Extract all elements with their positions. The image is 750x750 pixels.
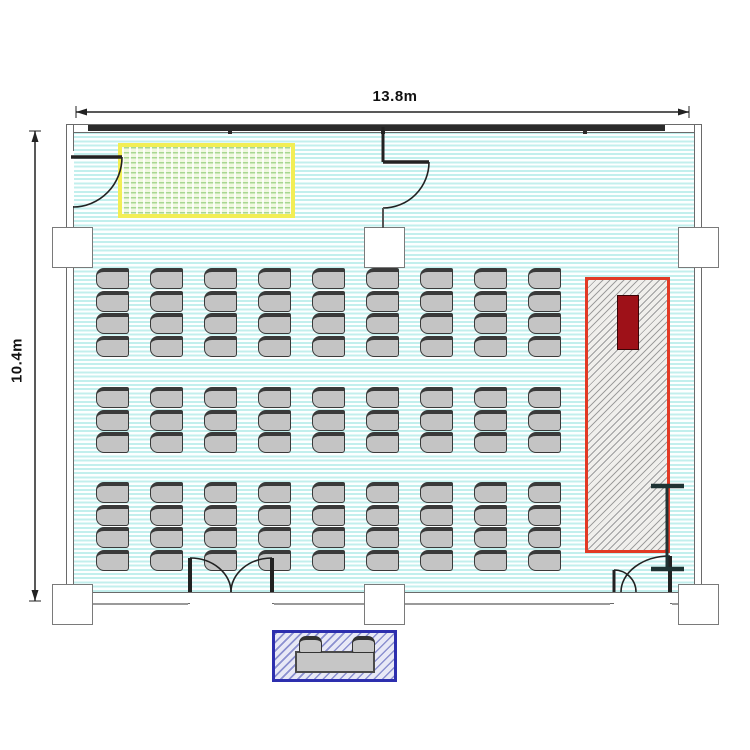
chair [312,527,345,548]
chair [366,527,399,548]
door-opening-right [614,593,670,604]
wall-right [694,124,702,604]
chair [312,482,345,503]
chair [204,336,237,357]
chair [204,550,237,571]
chair [204,505,237,526]
chair [258,527,291,548]
chair [150,387,183,408]
chair [204,527,237,548]
chair [366,505,399,526]
column-pillar [52,227,93,268]
chair [528,268,561,289]
chair [528,505,561,526]
chair [312,313,345,334]
chair [366,268,399,289]
door-opening-double [190,593,272,604]
chair [420,410,453,431]
chair [96,291,129,312]
chair [96,336,129,357]
floor-plan-canvas: 13.8m 10.4m [0,0,750,750]
exterior-wall-line [80,603,188,605]
chair [528,410,561,431]
chair [258,336,291,357]
column-pillar [52,584,93,625]
chair [474,410,507,431]
chair [312,291,345,312]
chair [258,387,291,408]
chair [366,387,399,408]
chair [528,432,561,453]
chair [204,482,237,503]
chair [420,432,453,453]
window-mullion [583,125,587,134]
chair [150,432,183,453]
window-mullion [381,125,385,134]
chair [528,313,561,334]
chair [258,550,291,571]
column-pillar [364,584,405,625]
chair [474,291,507,312]
chair [528,550,561,571]
chair [366,550,399,571]
chair [96,313,129,334]
chair [528,387,561,408]
column-pillar [364,227,405,268]
chair [420,336,453,357]
reception-chair [352,636,375,653]
chair [150,410,183,431]
chair [474,505,507,526]
chair [528,291,561,312]
chair [258,505,291,526]
chair [258,291,291,312]
chair [96,268,129,289]
chair [420,313,453,334]
chair [312,268,345,289]
chair [474,336,507,357]
chair [420,291,453,312]
chair [96,550,129,571]
chair [258,268,291,289]
chair [474,313,507,334]
chair [528,527,561,548]
chair [150,550,183,571]
chair [474,482,507,503]
chair [312,432,345,453]
chair [150,482,183,503]
chair [204,387,237,408]
chair [258,313,291,334]
chair [474,550,507,571]
chair [150,527,183,548]
chair [420,482,453,503]
door-opening-left [67,151,74,206]
chair [474,527,507,548]
chair [312,550,345,571]
chair [420,268,453,289]
chair [96,387,129,408]
chair [204,268,237,289]
chair [204,313,237,334]
chair [258,410,291,431]
chair [366,336,399,357]
chair [312,336,345,357]
chair [150,313,183,334]
chair [150,268,183,289]
chair [96,432,129,453]
chair [420,387,453,408]
chair [150,336,183,357]
chair [528,336,561,357]
chair [420,550,453,571]
chair [204,432,237,453]
chair [528,482,561,503]
chair [366,313,399,334]
column-pillar [678,227,719,268]
chair [474,387,507,408]
chair [96,505,129,526]
chair [366,410,399,431]
reception-chair [299,636,322,653]
width-dimension-label: 13.8m [320,88,470,105]
chair [258,482,291,503]
chair [150,291,183,312]
chair [420,505,453,526]
chair [312,410,345,431]
chair [312,505,345,526]
reception-table [295,651,375,673]
chair [474,432,507,453]
column-pillar [678,584,719,625]
window-band [88,125,665,131]
chair [366,482,399,503]
height-dimension-label: 10.4m [9,326,26,396]
chair [366,291,399,312]
chair [366,432,399,453]
chair [258,432,291,453]
chair [96,527,129,548]
chair [420,527,453,548]
chair [150,505,183,526]
chair [96,410,129,431]
exterior-wall-line [274,603,610,605]
window-mullion [228,125,232,134]
chair [204,410,237,431]
chair [312,387,345,408]
chair [474,268,507,289]
chair [96,482,129,503]
chair [204,291,237,312]
